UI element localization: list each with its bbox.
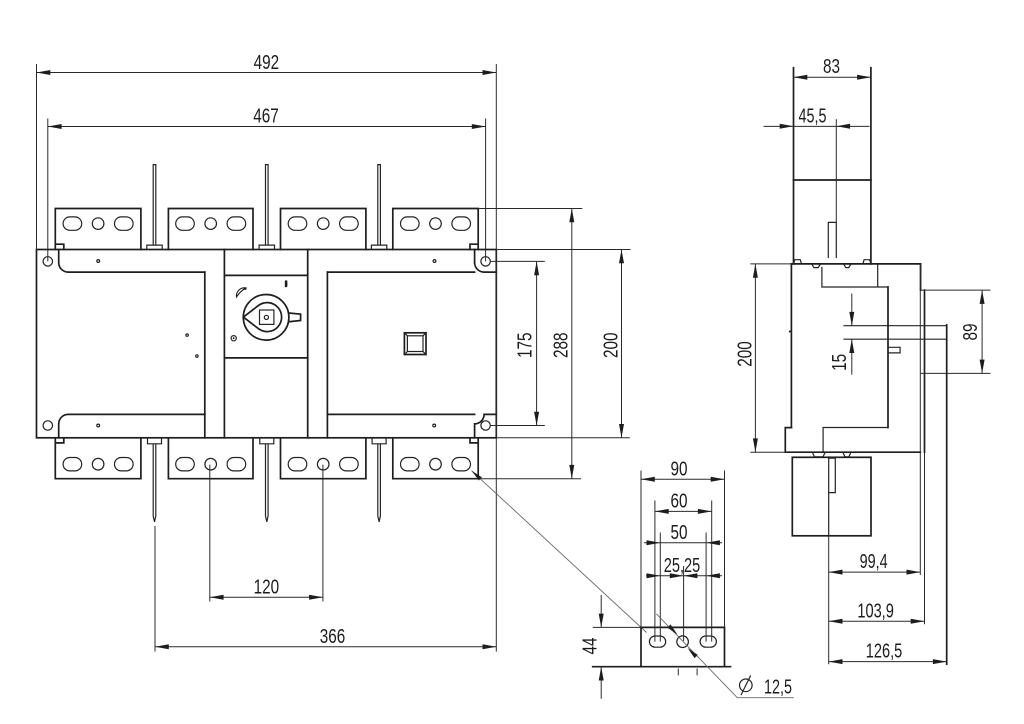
svg-text:288: 288 [551, 333, 573, 359]
svg-text:175: 175 [515, 333, 537, 359]
svg-text:366: 366 [320, 626, 346, 648]
svg-text:45,5: 45,5 [799, 106, 827, 128]
svg-text:90: 90 [671, 458, 688, 480]
svg-text:83: 83 [823, 56, 840, 78]
svg-text:50: 50 [671, 522, 688, 544]
svg-text:200: 200 [600, 333, 622, 359]
svg-text:126,5: 126,5 [866, 641, 903, 663]
svg-text:44: 44 [580, 638, 602, 655]
svg-text:200: 200 [735, 341, 757, 367]
svg-text:12,5: 12,5 [764, 677, 792, 699]
svg-text:492: 492 [254, 52, 280, 74]
svg-text:103,9: 103,9 [857, 600, 894, 622]
svg-text:89: 89 [960, 324, 982, 341]
svg-text:99,4: 99,4 [860, 551, 888, 573]
svg-text:467: 467 [253, 106, 279, 128]
svg-text:25,25: 25,25 [664, 555, 701, 577]
svg-text:120: 120 [254, 576, 280, 598]
svg-text:60: 60 [671, 491, 688, 513]
svg-text:15: 15 [829, 354, 851, 371]
